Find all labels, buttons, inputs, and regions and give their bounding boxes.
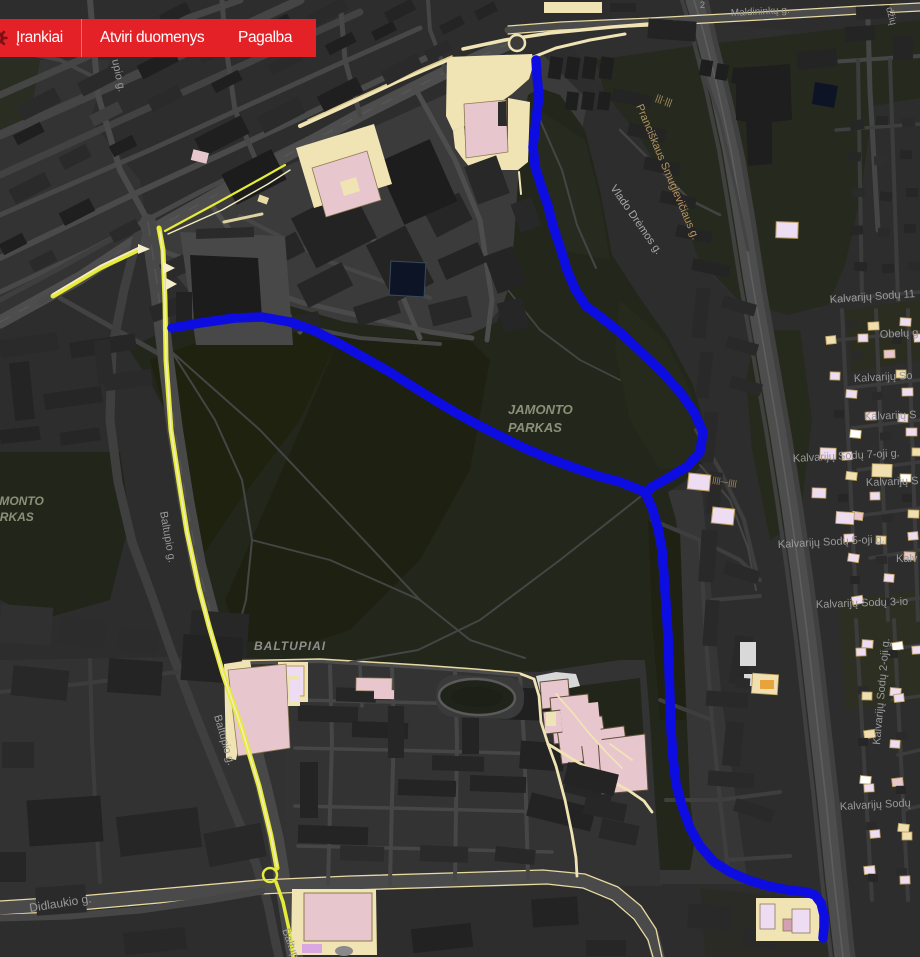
- svg-text:JAMONTO: JAMONTO: [0, 494, 44, 508]
- svg-text:2: 2: [700, 0, 705, 10]
- svg-text:PARKAS: PARKAS: [0, 510, 34, 524]
- svg-text:Obelų g: Obelų g: [880, 327, 919, 341]
- svg-text:Kalvarijų S: Kalvarijų S: [864, 409, 917, 423]
- svg-text:PARKAS: PARKAS: [508, 420, 562, 435]
- svg-text:Kalvarijų S: Kalvarijų S: [866, 475, 919, 489]
- svg-text:Kalv: Kalv: [896, 553, 918, 565]
- svg-text:BALTUPIAI: BALTUPIAI: [254, 639, 326, 653]
- svg-text:JAMONTO: JAMONTO: [508, 402, 573, 417]
